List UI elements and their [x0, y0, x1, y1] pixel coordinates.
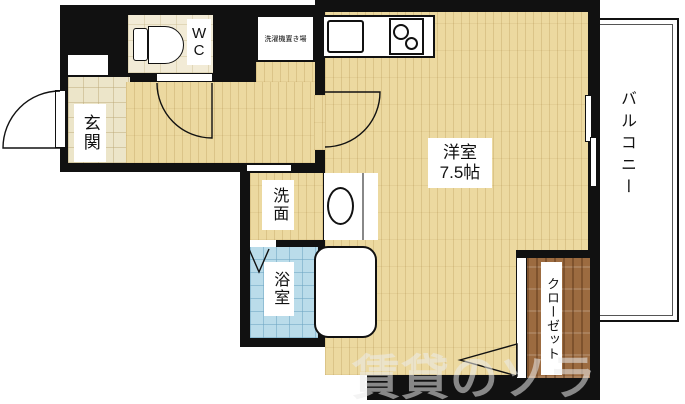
- washbasin-counter-edge: [362, 173, 364, 240]
- balcony-label: バルコニー: [612, 55, 638, 235]
- sliding-window-icon-2: [590, 137, 597, 187]
- wc-door-leaf: [156, 73, 213, 82]
- watermark: 賃貸のソラ: [352, 338, 597, 404]
- bathtub-icon: [314, 246, 377, 338]
- closet-top-wall: [516, 250, 597, 258]
- entrance-door-arc: [3, 91, 60, 148]
- entrance-door-leaf: [55, 90, 66, 148]
- main-room-label: 洋室 7.5帖: [428, 138, 492, 188]
- main-room-size: 7.5帖: [440, 163, 481, 183]
- main-room-name: 洋室: [443, 143, 477, 163]
- washbasin-icon: [327, 187, 354, 225]
- laundry-label: 洗濯機置き場: [265, 34, 307, 44]
- kitchen-sink-icon: [327, 20, 364, 53]
- main-door-opening: [314, 95, 325, 150]
- entrance-storage-cabinet: [66, 53, 110, 77]
- bathroom-door-opening: [250, 240, 276, 247]
- laundry-space: 洗濯機置き場: [256, 15, 315, 62]
- floor-plan: 洗濯機置き場 玄関 WC 洗面 浴室 洋室 7.5帖 クローゼット: [0, 0, 685, 404]
- wc-label: WC: [187, 19, 211, 65]
- entrance-label: 玄関: [74, 104, 106, 162]
- washroom-label: 洗面: [262, 180, 294, 230]
- hallway-floor-upper: [256, 62, 315, 82]
- sliding-window-icon: [585, 95, 592, 142]
- washroom-door-slider: [247, 164, 291, 172]
- stove-burner-small: [405, 37, 418, 50]
- toilet-icon: [133, 26, 185, 64]
- bathroom-label: 浴室: [264, 262, 294, 316]
- hallway-floor: [126, 82, 315, 163]
